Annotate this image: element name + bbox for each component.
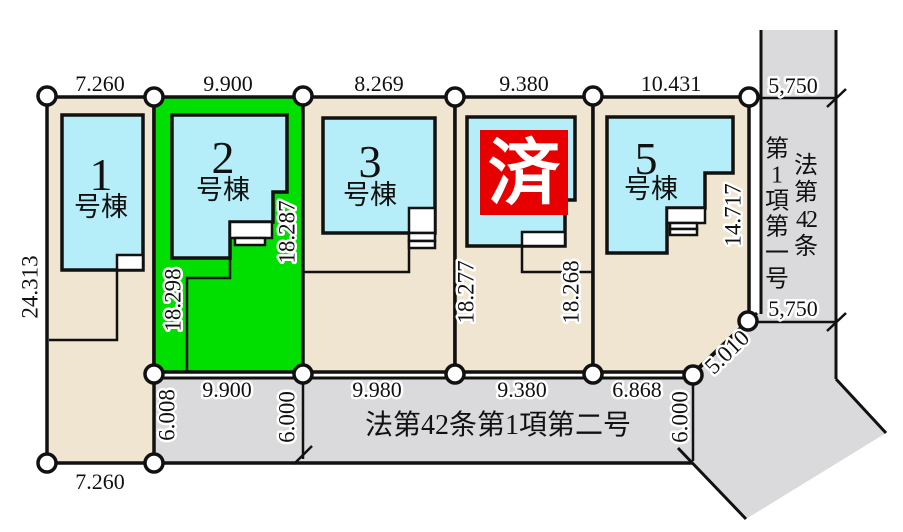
node [294, 365, 312, 383]
dim-lot4-bottom: 9.380 [497, 377, 547, 402]
building-2-suffix: 号棟 [196, 175, 250, 205]
dim-lot4-right: 18.268 [559, 260, 584, 323]
dim-lot3-bottom: 9.980 [352, 377, 402, 402]
dim-lot5-top: 10.431 [641, 71, 702, 96]
dim-right-road-bottom: 5,750 [768, 296, 818, 321]
node [584, 87, 602, 105]
dim-road-width-right: 6.000 [668, 391, 693, 443]
dim-right-road-top: 5,750 [768, 73, 818, 98]
sold-badge-label: 済 [488, 134, 561, 214]
building-5-step-2 [670, 229, 697, 235]
node [38, 454, 56, 472]
site-plan: 法第42条第1項第二号 法第42条 第1項第一号 1 号棟 2 号棟 3 号棟 [0, 0, 903, 532]
right-road-label-col2: 第1項第一号 [765, 135, 789, 292]
node [145, 454, 163, 472]
node [145, 365, 163, 383]
dim-lot2-top: 9.900 [203, 71, 253, 96]
dim-lot5-right: 14.717 [721, 183, 746, 246]
bottom-road-label: 法第42条第1項第二号 [365, 409, 631, 441]
node [294, 87, 312, 105]
building-4-porch [522, 232, 565, 246]
node [38, 87, 56, 105]
node [446, 365, 464, 383]
node [145, 88, 163, 106]
building-2-step [235, 238, 265, 245]
building-3-porch [409, 208, 435, 233]
dim-road-width-left: 6.008 [155, 389, 180, 441]
building-2-porch [230, 222, 272, 238]
node [684, 366, 702, 384]
dim-lot2-right: 18.287 [275, 200, 300, 263]
dim-lot4-top: 9.380 [499, 71, 549, 96]
node [739, 312, 757, 330]
dim-lot1-left: 24.313 [18, 255, 43, 318]
building-3-suffix: 号棟 [343, 180, 397, 210]
building-3-step-2 [409, 241, 435, 248]
dim-lot4-left: 18.277 [454, 260, 479, 323]
building-5-suffix: 号棟 [624, 174, 678, 204]
dim-lot3-top: 8.269 [354, 71, 404, 96]
dim-lot2-bottom: 9.900 [202, 377, 252, 402]
dim-road-width-mid: 6.000 [275, 391, 300, 443]
dim-lot1-bottom: 7.260 [75, 469, 125, 494]
node [584, 365, 602, 383]
building-1-suffix: 号棟 [74, 192, 128, 222]
node [740, 88, 758, 106]
dim-lot2-left: 18.298 [161, 268, 186, 331]
building-1-porch [117, 255, 143, 270]
right-road-label-col1: 法第42条 [794, 152, 818, 260]
dim-lot5-bottom: 6.868 [612, 377, 662, 402]
node [446, 88, 464, 106]
building-5-porch [667, 208, 705, 223]
dim-lot1-top: 7.260 [75, 71, 125, 96]
